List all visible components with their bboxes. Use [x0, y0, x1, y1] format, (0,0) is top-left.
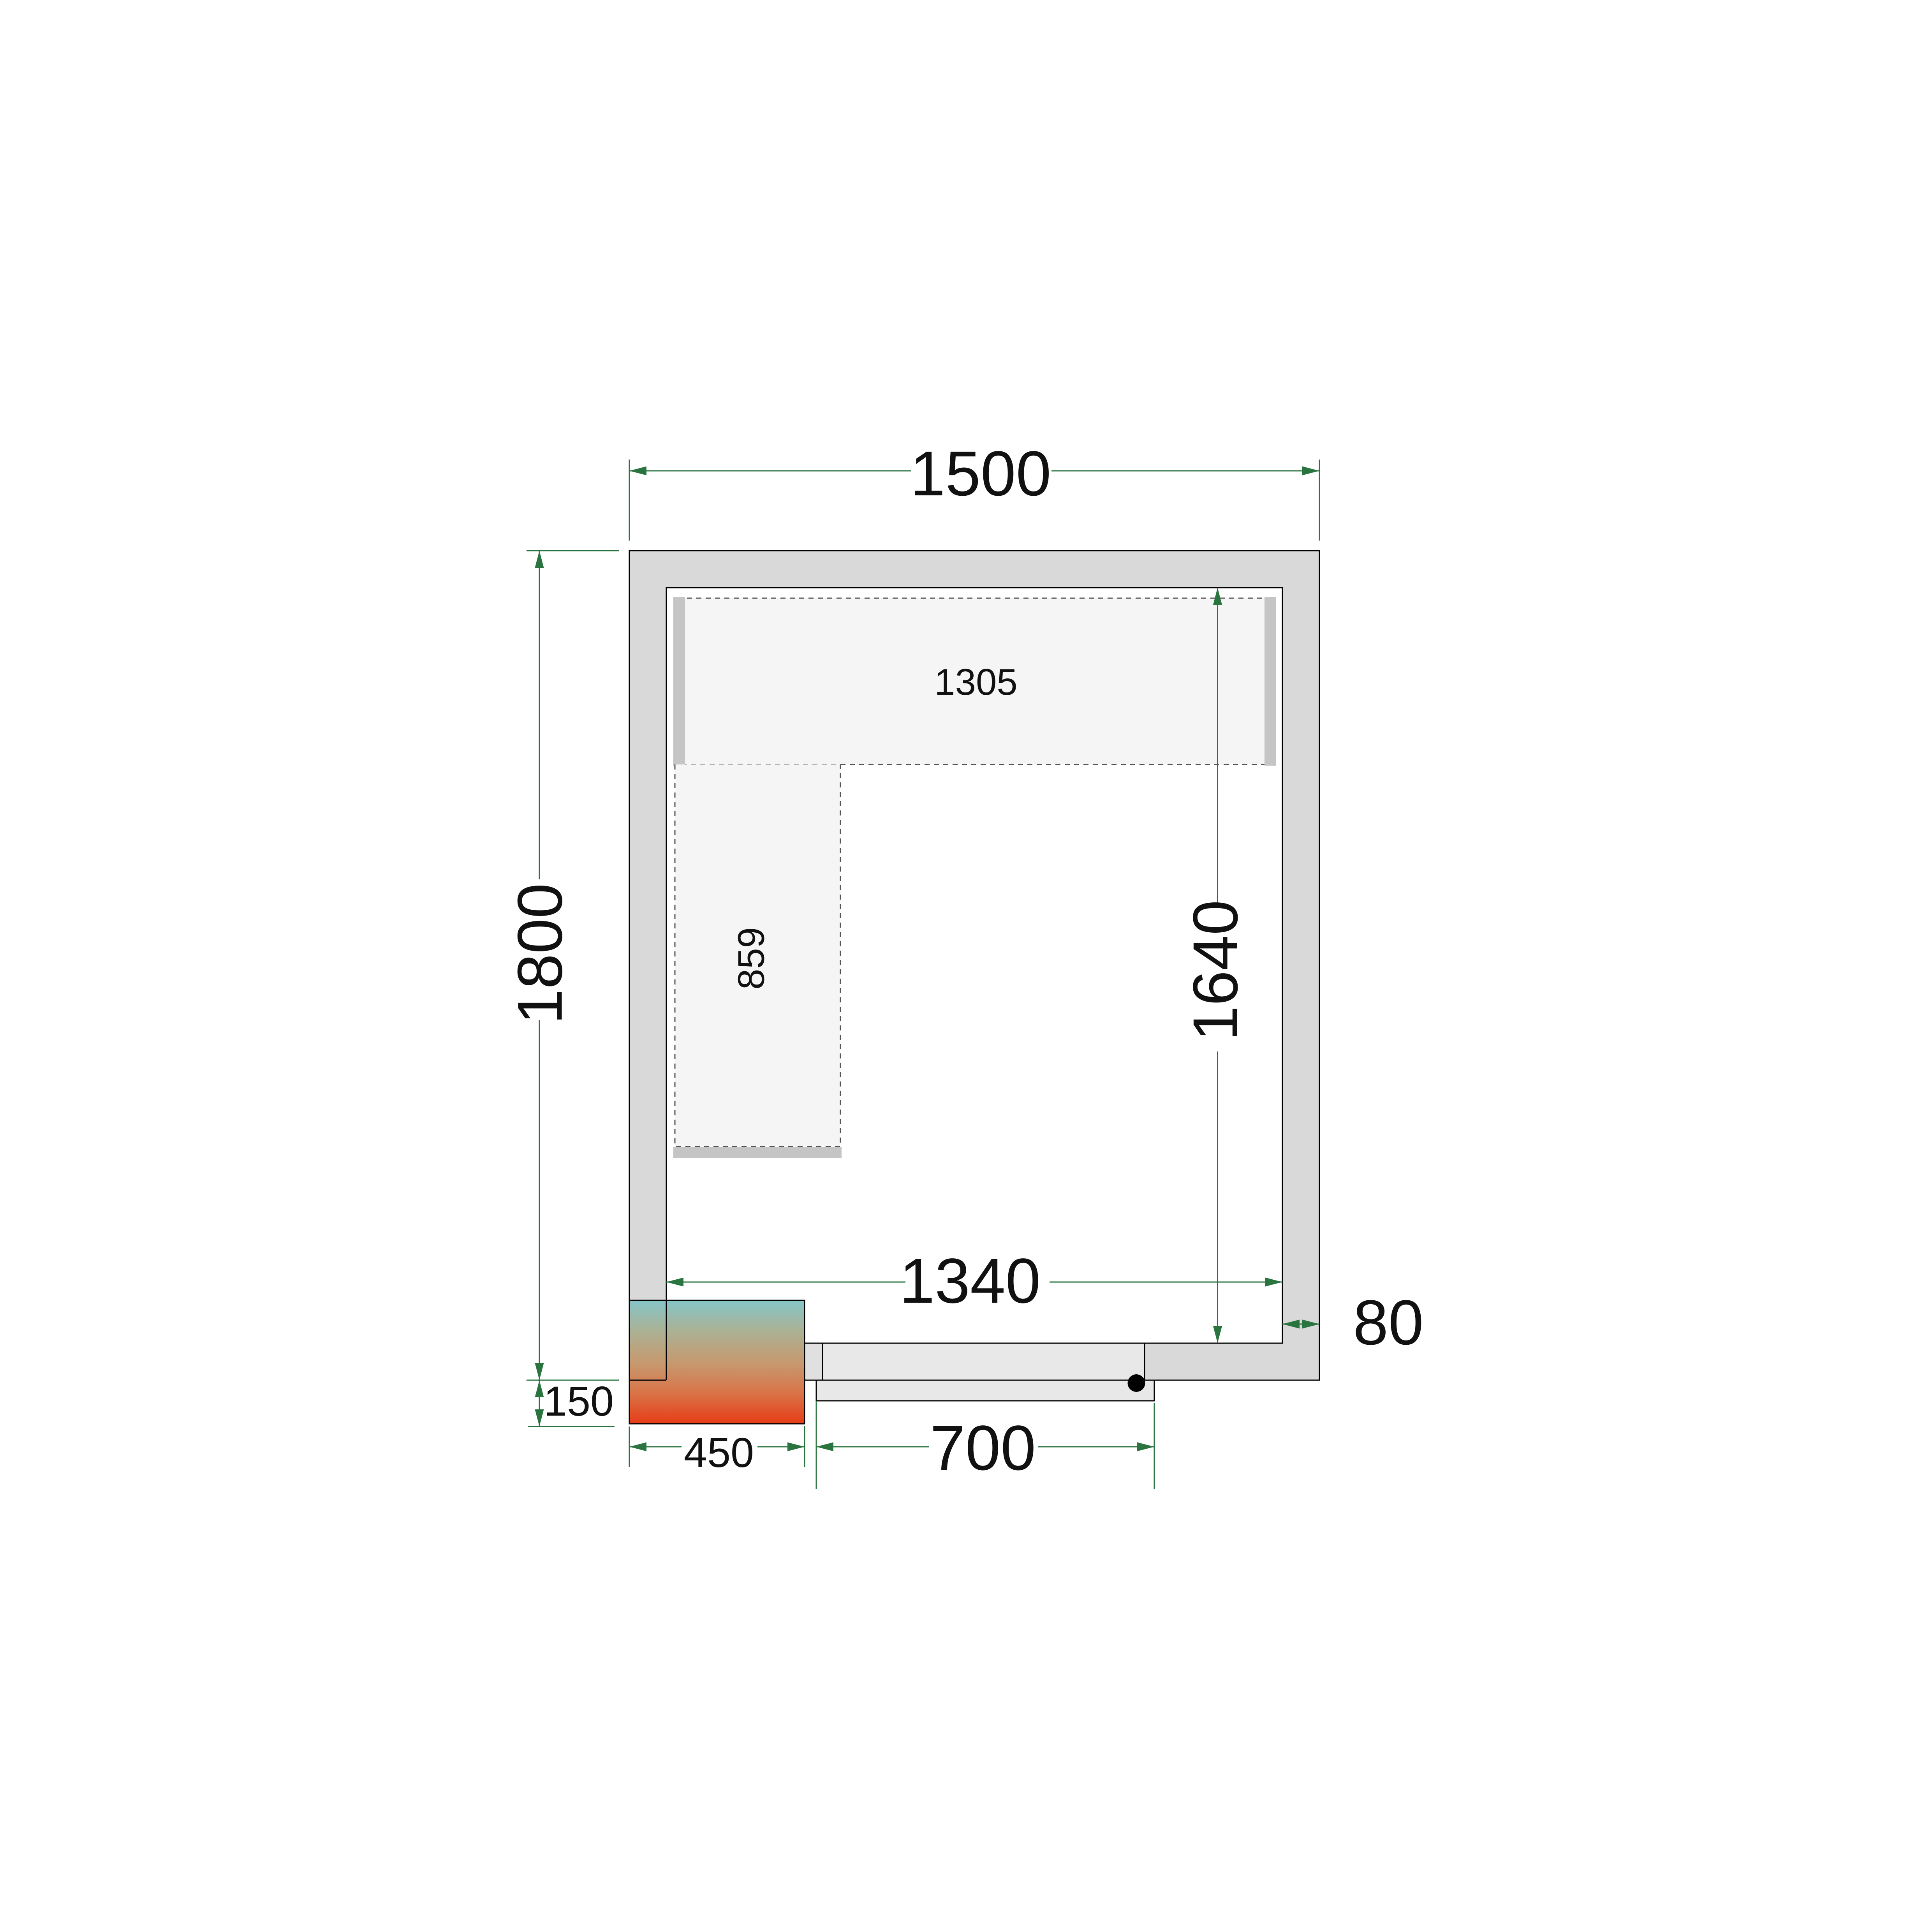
svg-text:1340: 1340	[900, 1245, 1041, 1316]
svg-text:859: 859	[731, 927, 772, 990]
svg-text:1800: 1800	[504, 883, 576, 1025]
svg-text:80: 80	[1353, 1287, 1423, 1358]
svg-text:150: 150	[544, 1377, 614, 1425]
svg-text:450: 450	[684, 1429, 754, 1476]
svg-text:1500: 1500	[910, 438, 1051, 509]
svg-text:700: 700	[930, 1412, 1036, 1483]
svg-text:1640: 1640	[1180, 900, 1251, 1041]
svg-text:1305: 1305	[934, 661, 1018, 703]
